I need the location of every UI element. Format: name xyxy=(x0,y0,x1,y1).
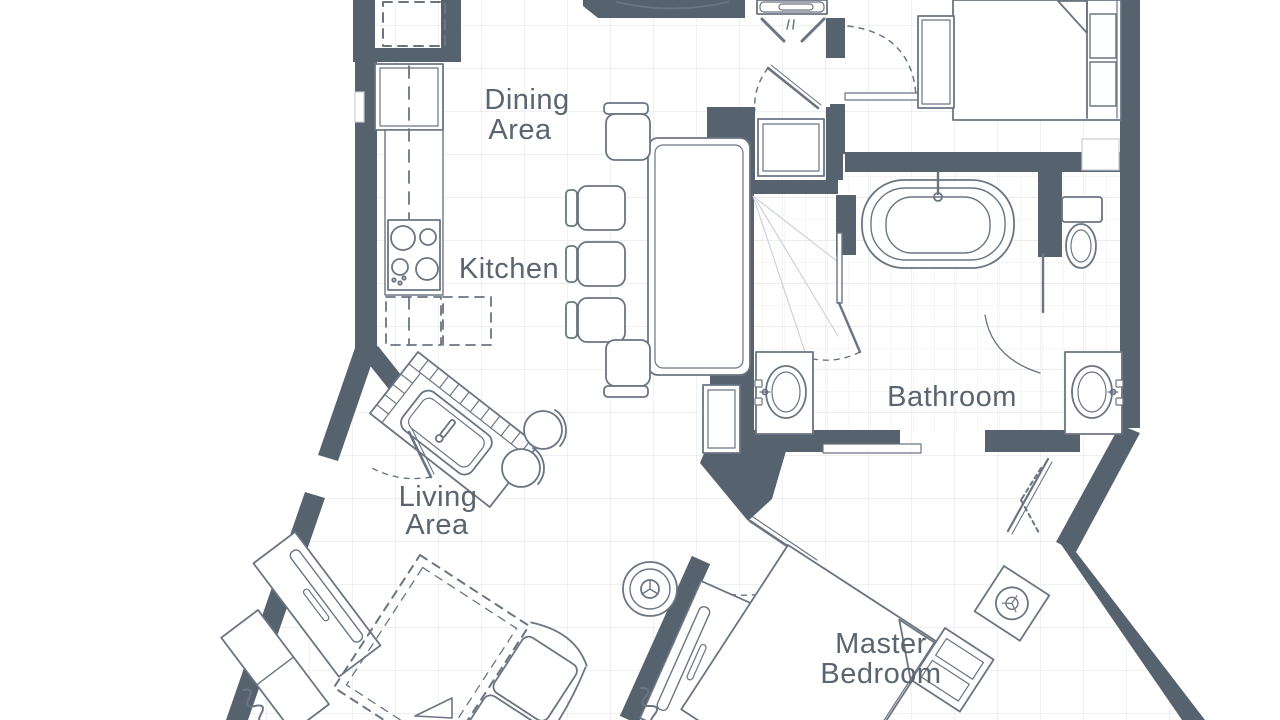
bed-icon xyxy=(953,0,1121,120)
master-bedroom-label: Master xyxy=(835,628,927,660)
nightstand-icon xyxy=(918,16,954,108)
sink-vanity-icon xyxy=(1065,352,1123,434)
dining-table-icon xyxy=(648,138,750,375)
entry-appliance-icon xyxy=(757,0,827,14)
wall-segment xyxy=(845,152,1120,172)
floor-plan-drawing: Dining Area Kitchen Bathroom Living Area… xyxy=(0,0,1280,720)
sink-vanity-icon xyxy=(755,352,813,434)
round-side-table-icon xyxy=(623,562,677,616)
cooktop-icon xyxy=(388,220,440,290)
wall-segment xyxy=(826,18,845,58)
dining-area-label: Area xyxy=(488,114,552,146)
wall-segment xyxy=(1120,0,1140,428)
wall-segment xyxy=(1038,172,1062,257)
wardrobe-shelf-icon xyxy=(823,444,921,453)
dining-area-label: Dining xyxy=(484,84,569,116)
window-niche xyxy=(1082,139,1119,170)
kitchen-label: Kitchen xyxy=(459,253,559,285)
wall-segment xyxy=(707,107,755,141)
wall-segment xyxy=(753,180,838,194)
window-slot xyxy=(355,92,364,122)
living-area-label: Area xyxy=(405,509,469,541)
floor-plan-page: Dining Area Kitchen Bathroom Living Area… xyxy=(0,0,1280,720)
bathroom-label: Bathroom xyxy=(887,381,1017,413)
window-sill xyxy=(845,93,918,100)
bathtub-icon xyxy=(862,172,1014,268)
hall-cabinet-icon xyxy=(703,385,740,453)
master-bedroom-label: Bedroom xyxy=(820,658,941,690)
wall-segment xyxy=(826,107,843,180)
closet-shelf-icon xyxy=(758,119,824,176)
